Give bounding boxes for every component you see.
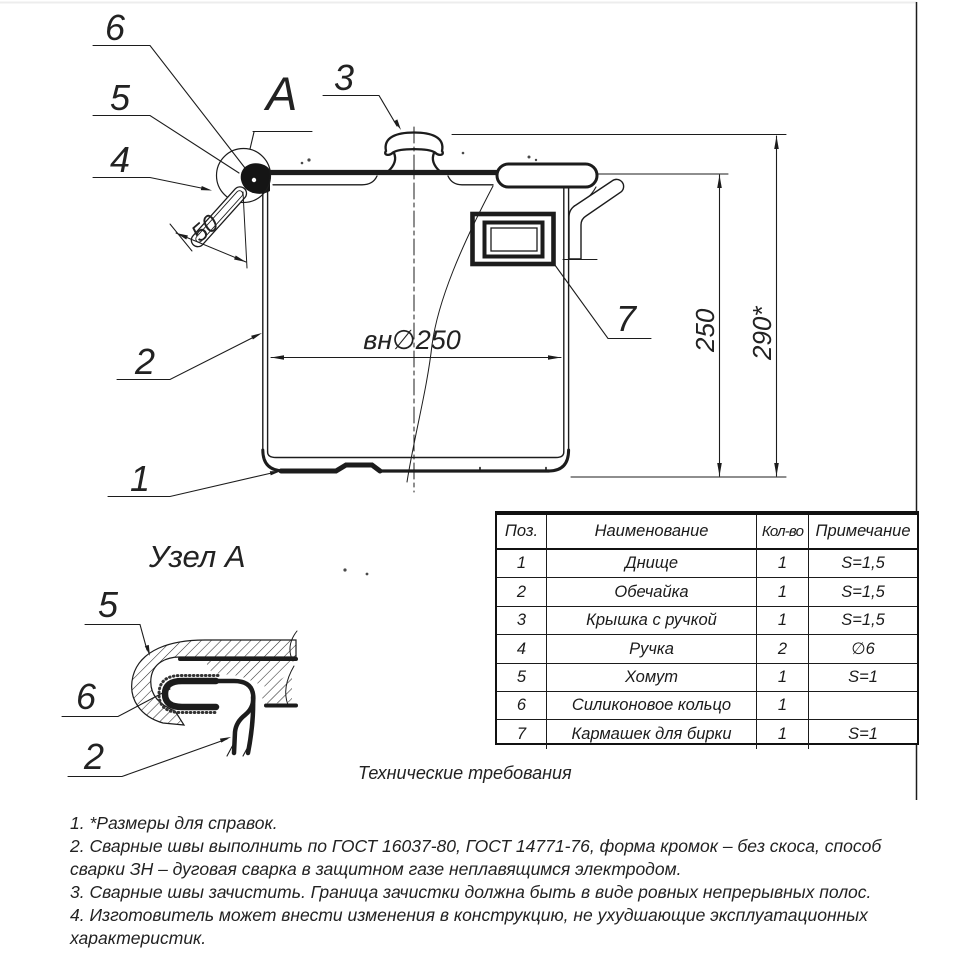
table-cell-name: Обечайка — [547, 578, 757, 606]
tech-requirement-line: сварки ЗН – дуговая сварка в защитном га… — [70, 858, 915, 881]
table-cell-pos: 5 — [497, 664, 547, 692]
tech-requirement-line: 1. *Размеры для справок. — [70, 812, 915, 835]
tech-requirement-line: 3. Сварные швы зачистить. Граница зачист… — [70, 881, 915, 904]
view-a-label: А — [263, 67, 297, 120]
table-header-pos: Поз. — [497, 515, 547, 550]
tech-requirement-line: характеристик. — [70, 927, 915, 950]
callout-3: 3 — [334, 57, 354, 98]
table-cell-qty: 1 — [757, 720, 809, 748]
callout-1: 1 — [130, 458, 150, 499]
table-cell-qty: 1 — [757, 550, 809, 578]
table-cell-note: S=1,5 — [809, 550, 917, 578]
detail-callout-6: 6 — [76, 676, 97, 717]
table-cell-note: ∅6 — [809, 635, 917, 663]
rolled-rim-section — [165, 681, 216, 707]
detail-callout-2: 2 — [83, 736, 104, 777]
table-cell-qty: 1 — [757, 607, 809, 635]
table-cell-note — [809, 692, 917, 720]
dim-290-label: 290* — [747, 306, 777, 361]
main-view — [93, 46, 844, 591]
dim-inner-diameter — [271, 355, 561, 360]
table-cell-pos: 4 — [497, 635, 547, 663]
dim-inner-diameter-label: вн∅250 — [363, 325, 461, 355]
table-cell-name: Хомут — [547, 664, 757, 692]
table-header-qty: Кол-во — [757, 515, 809, 550]
table-cell-qty: 2 — [757, 635, 809, 663]
table-cell-name: Силиконовое кольцо — [547, 692, 757, 720]
table-cell-qty: 1 — [757, 692, 809, 720]
detail-callout-5: 5 — [98, 584, 119, 625]
tech-requirements: 1. *Размеры для справок. 2. Сварные швы … — [70, 812, 915, 950]
table-header-name: Наименование — [547, 515, 757, 550]
table-cell-pos: 3 — [497, 607, 547, 635]
table-cell-note: S=1 — [809, 720, 917, 748]
table-cell-pos: 2 — [497, 578, 547, 606]
drawing-sheet: 6 5 4 3 2 1 7 А вн∅250 250 290* 50 Узел … — [0, 0, 960, 960]
table-cell-name: Кармашек для бирки — [547, 720, 757, 748]
detail-a-title: Узел А — [148, 539, 246, 574]
table-cell-note: S=1,5 — [809, 578, 917, 606]
table-cell-name: Днище — [547, 550, 757, 578]
table-header-note: Примечание — [809, 515, 917, 550]
dim-250-label: 250 — [690, 308, 720, 353]
callout-4: 4 — [110, 139, 130, 180]
lid — [250, 133, 597, 207]
callout-7: 7 — [616, 298, 638, 339]
table-cell-qty: 1 — [757, 578, 809, 606]
callout-6: 6 — [105, 7, 126, 48]
table-cell-qty: 1 — [757, 664, 809, 692]
table-cell-pos: 7 — [497, 720, 547, 748]
callout-5: 5 — [110, 77, 131, 118]
rim-band — [497, 164, 597, 187]
tech-requirement-line: 4. Изготовитель может внести изменения в… — [70, 904, 915, 927]
table-cell-name: Ручка — [547, 635, 757, 663]
parts-table: Поз. Наименование Кол-во Примечание 1 Дн… — [495, 511, 919, 745]
tech-requirements-title: Технические требования — [358, 763, 572, 784]
table-cell-pos: 6 — [497, 692, 547, 720]
corner-clamp — [217, 132, 313, 203]
table-cell-name: Крышка с ручкой — [547, 607, 757, 635]
tag-pocket — [473, 214, 554, 264]
table-cell-note: S=1 — [809, 664, 917, 692]
callout-leaders — [93, 46, 651, 497]
table-cell-pos: 1 — [497, 550, 547, 578]
table-cell-note: S=1,5 — [809, 607, 917, 635]
callout-2: 2 — [134, 341, 155, 382]
tech-requirement-line: 2. Сварные швы выполнить по ГОСТ 16037-8… — [70, 835, 915, 858]
